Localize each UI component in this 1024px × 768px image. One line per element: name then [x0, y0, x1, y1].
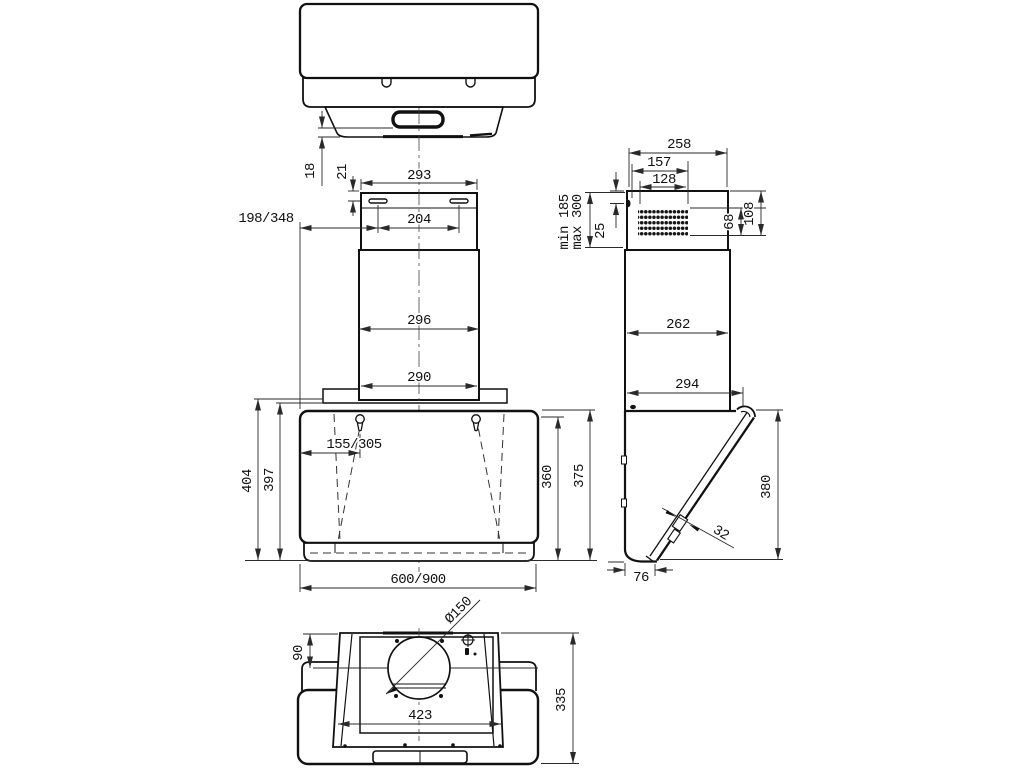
technical-drawing-canvas: 18 21	[0, 0, 1024, 768]
dim-label-chimney-depth: 262	[666, 317, 690, 333]
exhaust-outlet	[388, 637, 450, 699]
dim-label-hanger-offset: 155/305	[326, 437, 381, 453]
dim-label-height-back: 397	[262, 468, 278, 492]
dim-label-body-height: 375	[572, 464, 588, 488]
side-view: 258 157 128 min 185 max 300 25 68	[557, 137, 783, 586]
bottom-view: 90 Ø150 423 335	[291, 594, 579, 764]
dim-label-vent-offset: 157	[647, 155, 671, 171]
bottom-view-outline	[298, 628, 538, 764]
body-bottom-band	[304, 543, 534, 561]
dim-label-glass-thickness: 32	[710, 522, 732, 544]
vent-grille	[638, 208, 688, 236]
dim-label-chimney-mid-width: 296	[407, 313, 431, 329]
dim-label-total-depth: 335	[554, 688, 570, 712]
dim-label-screw-offset: 25	[593, 223, 609, 239]
dim-label-chimney-bottom-width: 290	[407, 370, 431, 386]
dim-label-height-total-back: 404	[240, 469, 256, 493]
dim-label-top-depth: 258	[667, 137, 691, 153]
screw-bottom	[630, 405, 636, 409]
dim-label-slot-spacing: 204	[407, 212, 431, 228]
screw-top	[627, 200, 631, 207]
dim-label-vent-height: 68	[722, 214, 738, 230]
dim-label-outlet-diameter: Ø150	[442, 594, 476, 628]
dim-label-glass-height: 360	[540, 465, 556, 489]
dim-label-wall-offset: 198/348	[238, 211, 293, 227]
glass-clip-lower	[668, 529, 681, 543]
side-body-profile	[625, 411, 657, 562]
dim-label-body-width: 600/900	[390, 572, 445, 588]
hood-dimension-drawing: 18 21	[0, 0, 1024, 768]
dim-label-opening-width: 423	[408, 708, 432, 724]
hood-body	[300, 411, 538, 543]
front-view: 293 204 198/348 296 290 155/305 404	[238, 108, 597, 592]
dim-label-mount-max: max 300	[570, 194, 586, 249]
top-vent-slot	[393, 112, 443, 127]
dim-label-bottom-depth: 76	[633, 570, 649, 586]
dim-label-vent-width: 128	[652, 172, 676, 188]
dim-label-body-depth: 294	[675, 377, 699, 393]
dim-label-slot-top-offset: 21	[335, 164, 351, 180]
dim-label-vent-bottom-offset: 108	[742, 202, 758, 226]
dim-label-outlet-offset: 90	[291, 645, 307, 661]
glass-panel-inner	[650, 413, 747, 557]
dim-label-glass-drop: 380	[759, 475, 775, 499]
dim-label-chimney-top-width: 293	[407, 168, 431, 184]
dim-label-lip-height: 18	[303, 163, 319, 179]
